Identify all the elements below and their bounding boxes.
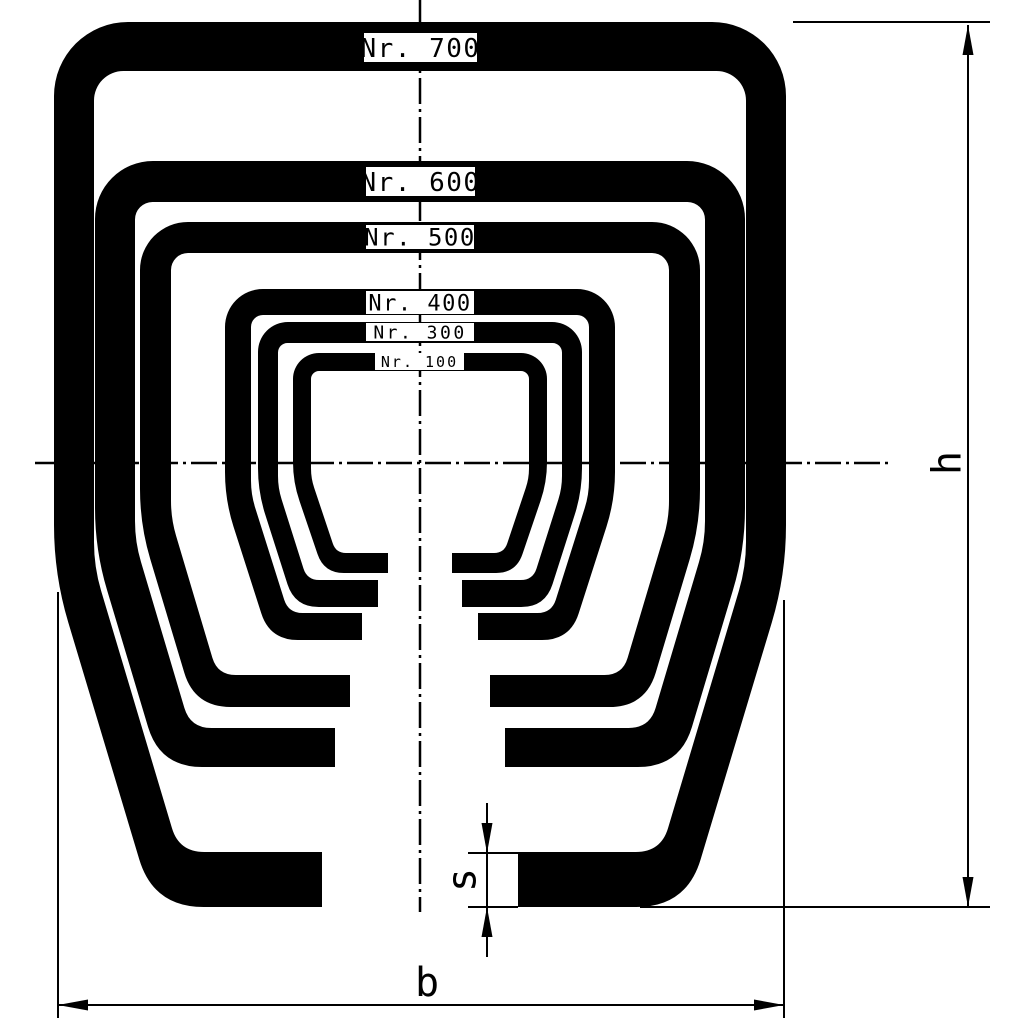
label-text-nr-700: Nr. 700 bbox=[360, 34, 480, 64]
drawing-canvas: Nr. 700Nr. 600Nr. 500Nr. 400Nr. 300Nr. 1… bbox=[0, 0, 1024, 1024]
label-text-nr-500: Nr. 500 bbox=[364, 224, 476, 252]
label-text-nr-600: Nr. 600 bbox=[360, 168, 480, 198]
s-dimension-label: s bbox=[439, 868, 485, 892]
b-dimension-label: b bbox=[415, 960, 439, 1006]
label-text-nr-300: Nr. 300 bbox=[373, 322, 466, 343]
profile-cross-section-diagram: Nr. 700Nr. 600Nr. 500Nr. 400Nr. 300Nr. 1… bbox=[0, 0, 1024, 1024]
label-text-nr-400: Nr. 400 bbox=[368, 291, 471, 316]
h-dimension-label: h bbox=[924, 451, 970, 475]
label-text-nr-100: Nr. 100 bbox=[381, 353, 458, 371]
